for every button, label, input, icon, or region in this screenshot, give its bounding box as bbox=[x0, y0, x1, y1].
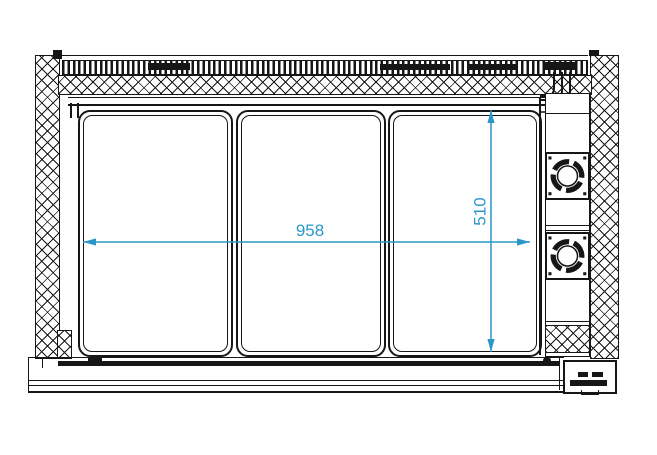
technical-drawing: 958 510 bbox=[0, 0, 657, 455]
fan-unit-2 bbox=[545, 232, 590, 280]
right-insulation-wall bbox=[590, 55, 619, 359]
fan-icon bbox=[547, 234, 588, 278]
channel-insulation-band bbox=[545, 325, 590, 353]
terminal-box bbox=[563, 360, 617, 394]
glass-panel-3 bbox=[388, 110, 542, 357]
terminal-box-foot bbox=[581, 390, 599, 395]
base-step-line bbox=[42, 357, 43, 368]
channel-divider bbox=[546, 321, 589, 322]
glass-panel-1 bbox=[78, 110, 233, 357]
grille-dense-patch bbox=[380, 64, 450, 70]
base-line bbox=[28, 380, 563, 381]
fan-unit-1 bbox=[545, 152, 590, 200]
dimension-label-width: 958 bbox=[280, 222, 340, 239]
base-heater-bar bbox=[58, 361, 560, 366]
left-insulation-wall bbox=[35, 55, 60, 359]
frame-hook-detail bbox=[70, 103, 79, 118]
terminal-bar-icon bbox=[570, 380, 607, 386]
base-bar-lug bbox=[88, 358, 102, 362]
left-wall-top-bracket-icon bbox=[53, 50, 62, 59]
left-wall-step bbox=[57, 330, 72, 359]
service-channel bbox=[545, 93, 590, 357]
grille-dense-patch bbox=[468, 64, 516, 70]
drain-dot-icon bbox=[543, 357, 551, 364]
base-line bbox=[28, 385, 563, 386]
channel-gap-lines bbox=[546, 225, 589, 231]
terminal-pin-icon bbox=[592, 372, 603, 377]
connector-left-edge bbox=[559, 357, 560, 390]
channel-divider bbox=[546, 113, 589, 114]
grille-dense-patch bbox=[545, 62, 577, 70]
terminal-pin-icon bbox=[578, 372, 588, 377]
dimension-label-depth: 510 bbox=[472, 190, 489, 234]
fan-icon bbox=[547, 154, 588, 198]
top-insulation-band bbox=[58, 75, 592, 95]
right-wall-top-bracket-icon bbox=[589, 50, 599, 56]
grille-dense-patch bbox=[148, 63, 190, 70]
inner-top-frame bbox=[68, 97, 545, 106]
